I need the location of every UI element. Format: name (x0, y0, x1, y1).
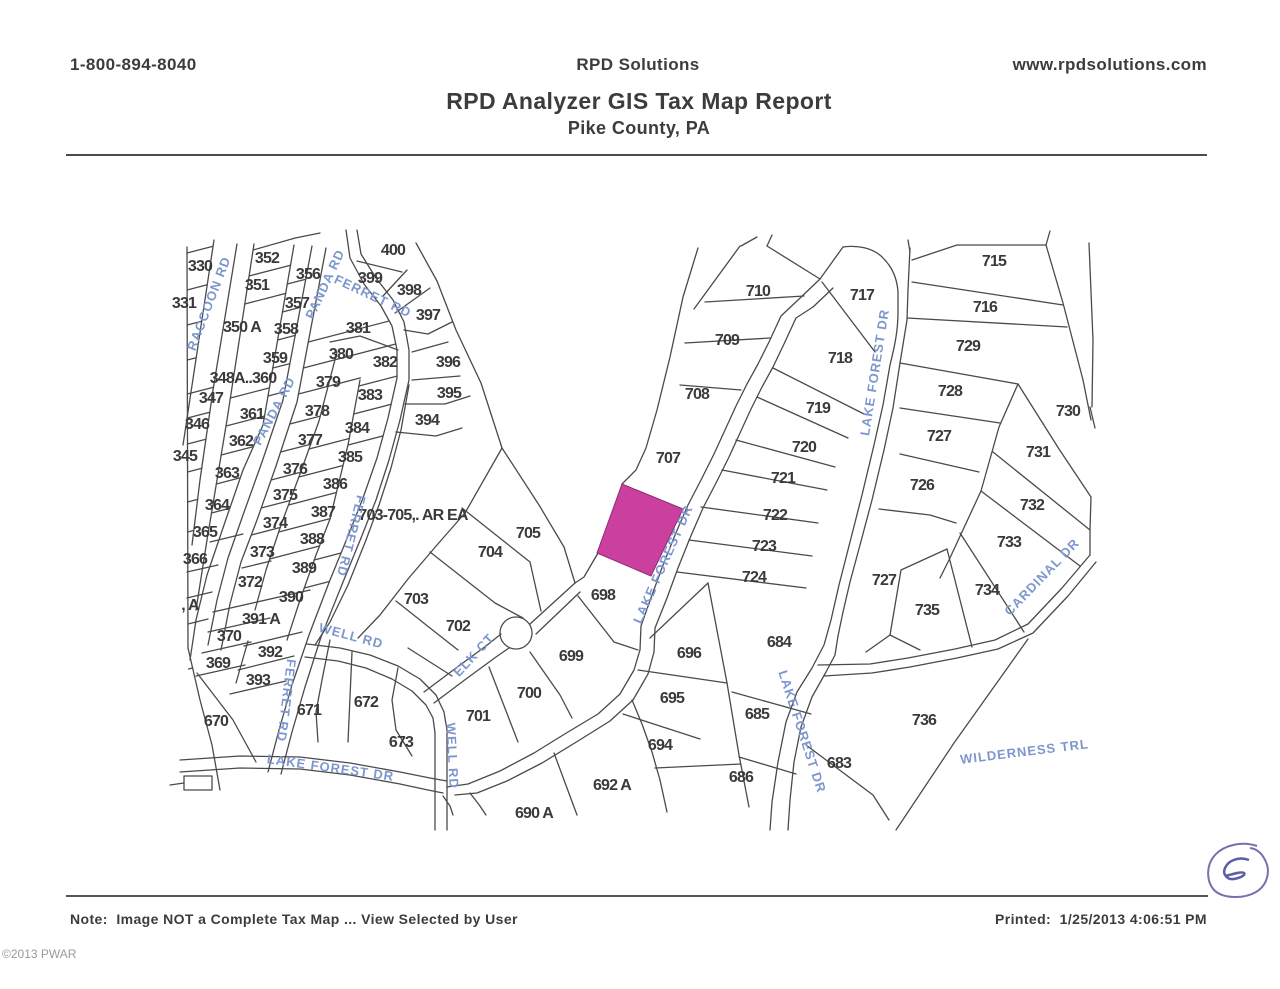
svg-text:387: 387 (311, 504, 336, 521)
svg-text:720: 720 (792, 439, 817, 456)
svg-text:394: 394 (415, 412, 440, 429)
svg-text:716: 716 (973, 299, 998, 316)
svg-text:WELL RD: WELL RD (443, 722, 461, 789)
svg-text:719: 719 (806, 400, 831, 417)
svg-text:386: 386 (323, 476, 348, 493)
svg-text:FERRET RD: FERRET RD (334, 494, 369, 579)
svg-text:685: 685 (745, 706, 770, 723)
svg-text:703: 703 (404, 591, 429, 608)
svg-text:LAKE FOREST DR: LAKE FOREST DR (266, 751, 395, 784)
svg-text:389: 389 (292, 560, 317, 577)
svg-text:396: 396 (436, 354, 461, 371)
svg-text:728: 728 (938, 383, 963, 400)
svg-text:718: 718 (828, 350, 853, 367)
svg-text:382: 382 (373, 354, 398, 371)
svg-text:670: 670 (204, 713, 229, 730)
svg-text:390: 390 (279, 589, 304, 606)
svg-text:683: 683 (827, 755, 852, 772)
svg-text:LAKE FOREST DR: LAKE FOREST DR (857, 308, 892, 437)
svg-text:734: 734 (975, 582, 1000, 599)
svg-text:331: 331 (172, 295, 197, 312)
svg-text:381: 381 (346, 320, 371, 337)
svg-text:388: 388 (300, 531, 325, 548)
svg-text:365: 365 (193, 524, 218, 541)
svg-text:727: 727 (872, 572, 897, 589)
svg-text:383: 383 (358, 387, 383, 404)
svg-text:690 A: 690 A (515, 805, 554, 822)
svg-text:348A..360: 348A..360 (210, 370, 278, 387)
svg-text:710: 710 (746, 283, 771, 300)
svg-text:391 A: 391 A (242, 611, 281, 628)
svg-text:373: 373 (250, 544, 275, 561)
svg-text:732: 732 (1020, 497, 1045, 514)
svg-text:366: 366 (183, 551, 208, 568)
svg-text:717: 717 (850, 287, 875, 304)
svg-text:376: 376 (283, 461, 308, 478)
svg-text:698: 698 (591, 587, 616, 604)
svg-text:346: 346 (185, 416, 210, 433)
svg-text:393: 393 (246, 672, 271, 689)
svg-text:722: 722 (763, 507, 788, 524)
svg-text:374: 374 (263, 515, 288, 532)
svg-text:378: 378 (305, 403, 330, 420)
svg-text:400: 400 (381, 242, 406, 259)
svg-text:715: 715 (982, 253, 1007, 270)
svg-text:351: 351 (245, 277, 270, 294)
svg-text:704: 704 (478, 544, 503, 561)
svg-text:735: 735 (915, 602, 940, 619)
svg-text:352: 352 (255, 250, 280, 267)
svg-text:708: 708 (685, 386, 710, 403)
svg-text:724: 724 (742, 569, 767, 586)
svg-text:369: 369 (206, 655, 231, 672)
svg-text:359: 359 (263, 350, 288, 367)
svg-text:385: 385 (338, 449, 363, 466)
svg-text:FERRET RD: FERRET RD (274, 658, 299, 743)
svg-text:727: 727 (927, 428, 952, 445)
svg-text:709: 709 (715, 332, 740, 349)
svg-text:684: 684 (767, 634, 792, 651)
svg-text:721: 721 (771, 470, 796, 487)
svg-text:695: 695 (660, 690, 685, 707)
svg-text:696: 696 (677, 645, 702, 662)
svg-text:, A: , A (181, 597, 200, 614)
svg-text:350 A: 350 A (223, 319, 262, 336)
svg-text:363: 363 (215, 465, 240, 482)
svg-text:377: 377 (298, 432, 323, 449)
svg-text:WILDERNESS TRL: WILDERNESS TRL (959, 736, 1089, 767)
svg-text:370: 370 (217, 628, 242, 645)
svg-text:ELK CT: ELK CT (450, 630, 497, 679)
svg-text:701: 701 (466, 708, 491, 725)
svg-text:729: 729 (956, 338, 981, 355)
svg-text:723: 723 (752, 538, 777, 555)
svg-text:707: 707 (656, 450, 681, 467)
svg-text:673: 673 (389, 734, 414, 751)
svg-text:358: 358 (274, 321, 299, 338)
svg-text:730: 730 (1056, 403, 1081, 420)
svg-text:384: 384 (345, 420, 370, 437)
svg-text:726: 726 (910, 477, 935, 494)
svg-text:694: 694 (648, 737, 673, 754)
svg-text:692 A: 692 A (593, 777, 632, 794)
svg-text:395: 395 (437, 385, 462, 402)
svg-text:375: 375 (273, 487, 298, 504)
svg-text:392: 392 (258, 644, 283, 661)
svg-text:705: 705 (516, 525, 541, 542)
svg-text:733: 733 (997, 534, 1022, 551)
svg-text:364: 364 (205, 497, 230, 514)
svg-text:398: 398 (397, 282, 422, 299)
svg-text:372: 372 (238, 574, 263, 591)
svg-text:379: 379 (316, 374, 341, 391)
svg-text:330: 330 (188, 258, 213, 275)
svg-text:671: 671 (297, 702, 322, 719)
svg-text:672: 672 (354, 694, 379, 711)
svg-text:731: 731 (1026, 444, 1051, 461)
svg-text:700: 700 (517, 685, 542, 702)
svg-text:736: 736 (912, 712, 937, 729)
svg-text:380: 380 (329, 346, 354, 363)
svg-text:686: 686 (729, 769, 754, 786)
svg-text:347: 347 (199, 390, 224, 407)
svg-text:703-705,. AR EA: 703-705,. AR EA (358, 507, 468, 524)
svg-text:699: 699 (559, 648, 584, 665)
svg-text:345: 345 (173, 448, 198, 465)
svg-text:702: 702 (446, 618, 471, 635)
svg-text:397: 397 (416, 307, 441, 324)
